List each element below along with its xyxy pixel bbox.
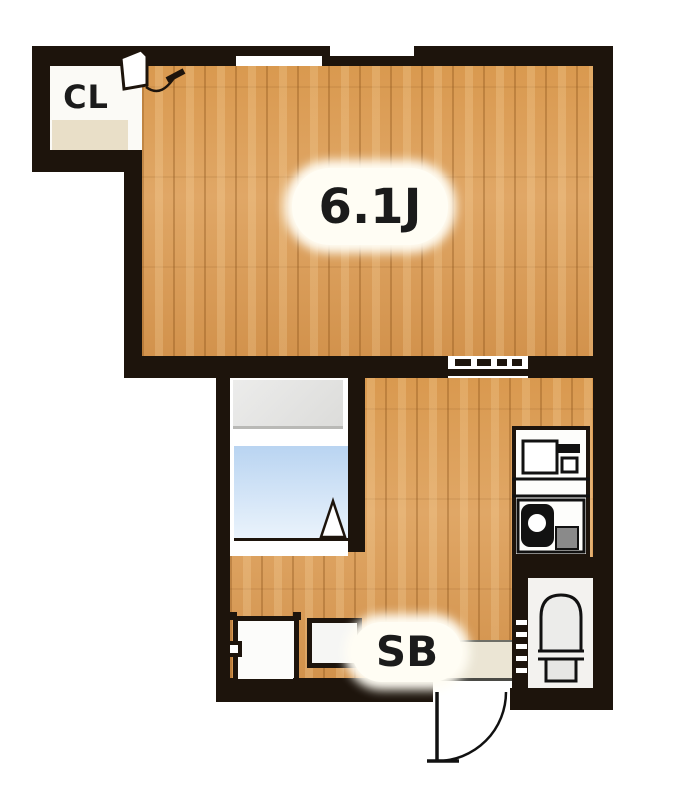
- folding-door-icon: [516, 656, 527, 661]
- main-room-label: 6.1J: [292, 168, 448, 245]
- bathroom-counter: [233, 380, 343, 429]
- closet-shelf: [52, 120, 128, 150]
- floor-plan: CL 6.1J SB: [0, 0, 675, 800]
- toilet-room-floor: [528, 578, 593, 688]
- sliding-window-icon: [330, 46, 414, 56]
- wall-toilet-bottom: [510, 688, 613, 710]
- folding-door-icon: [516, 632, 527, 637]
- wall-kitchen-toilet-divider: [512, 557, 613, 578]
- pan-corner: [293, 678, 301, 686]
- wall-right: [593, 46, 613, 710]
- folding-door-icon: [516, 620, 527, 625]
- sliding-door-rail: [448, 369, 528, 376]
- sliding-door-icon: [455, 359, 471, 366]
- folding-door-icon: [516, 644, 527, 649]
- sliding-door-icon: [512, 359, 522, 366]
- wall-room-bottom-left: [124, 356, 448, 378]
- washing-machine-pan-icon: [233, 616, 299, 684]
- wall-room-left: [124, 150, 142, 378]
- kitchen-unit: [512, 426, 590, 558]
- folding-door-icon: [516, 668, 527, 673]
- bathtub-icon: [234, 446, 348, 541]
- closet-label: CL: [54, 76, 118, 118]
- sliding-door-icon: [497, 359, 507, 366]
- sliding-window-icon: [236, 56, 322, 66]
- pan-corner: [229, 612, 237, 620]
- wall-top: [32, 46, 613, 66]
- sliding-door-icon: [477, 359, 491, 366]
- entrance-door-swing-icon: [427, 692, 506, 761]
- pan-faucet-box: [226, 641, 242, 657]
- shoe-box-label: SB: [352, 622, 462, 682]
- pan-corner: [293, 612, 301, 620]
- wall-bathroom-right: [348, 378, 365, 552]
- pan-corner: [229, 678, 237, 686]
